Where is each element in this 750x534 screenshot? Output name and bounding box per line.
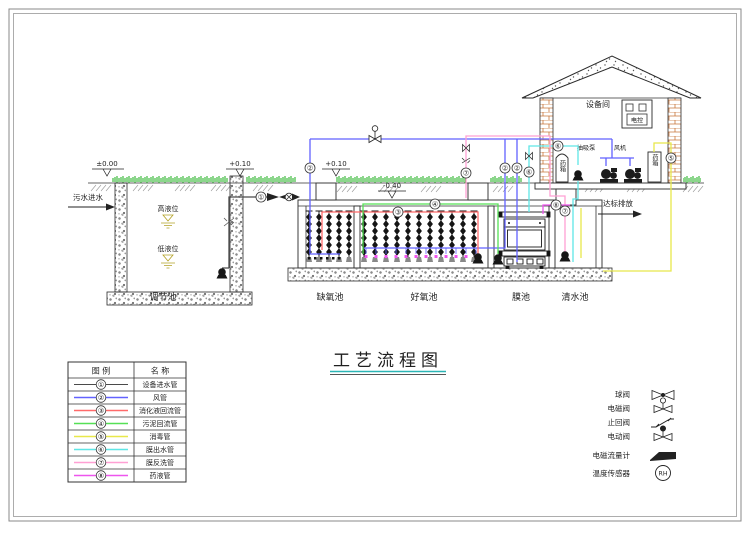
brick-column-left bbox=[540, 98, 553, 183]
legend-name: 风管 bbox=[153, 393, 167, 402]
legend-num: ⑥ bbox=[98, 446, 104, 454]
elev-tank-top: -0.40 bbox=[378, 182, 406, 198]
grass bbox=[112, 176, 228, 183]
legend-num: ③ bbox=[98, 407, 104, 415]
divider-wall bbox=[354, 206, 360, 268]
legend-num: ⑤ bbox=[98, 433, 104, 441]
aerobic-tank-label: 好氧池 bbox=[410, 291, 437, 303]
divider-wall bbox=[488, 206, 494, 268]
tank-wall bbox=[230, 176, 243, 292]
suction-pump-label: 抽吸泵 bbox=[577, 144, 596, 152]
pipe-num-2c: ② bbox=[514, 165, 520, 173]
drawing-sheet: 高液位 低液位 调节池 缺氧池 好氧池 膜池 bbox=[0, 0, 750, 530]
valve-label-sensor: 温度传感器 bbox=[593, 468, 631, 478]
suction-pump bbox=[573, 170, 584, 180]
elev-pier-top: +0.10 bbox=[322, 160, 350, 176]
flow-arrow bbox=[292, 194, 300, 201]
blower-label: 风机 bbox=[614, 144, 627, 152]
clean-tank-label: 清水池 bbox=[561, 291, 588, 303]
legend-row: ④ 污泥回流管 bbox=[74, 419, 178, 429]
valve-label-flowmeter: 电磁流量计 bbox=[593, 450, 631, 460]
title-text: 工艺流程图 bbox=[333, 351, 443, 371]
pipe-num-2b: ② bbox=[502, 165, 508, 173]
legend-name: 污泥回流管 bbox=[143, 419, 178, 428]
pipe-num-6: ⑥ bbox=[526, 169, 532, 177]
legend-num: ① bbox=[98, 381, 104, 389]
low-level-mark: 低液位 bbox=[158, 244, 179, 268]
chemical-tank-right-label: 药箱 bbox=[651, 153, 658, 167]
chemical-tank-left: 药箱 bbox=[556, 154, 568, 182]
legend-name: 药液管 bbox=[150, 471, 171, 480]
elev-ground: ±0.00 bbox=[92, 160, 124, 176]
valve-label-solenoid: 电磁阀 bbox=[608, 403, 631, 413]
legend-row: ⑤ 消毒管 bbox=[74, 432, 171, 442]
flowmeter-symbol bbox=[267, 193, 279, 201]
valve-legend: 球阀 电磁阀 止回阀 电动阀 电磁流量计 温度传感器 RH bbox=[593, 389, 677, 481]
blower-2 bbox=[624, 168, 642, 183]
legend-row: ⑦ 膜反洗管 bbox=[74, 458, 174, 468]
membrane-tank-label: 膜池 bbox=[512, 291, 530, 303]
legend-row: ① 设备进水管 bbox=[74, 380, 178, 390]
tank-wall bbox=[115, 183, 127, 292]
legend-row: ⑧ 药液管 bbox=[74, 471, 171, 481]
legend-name: 设备进水管 bbox=[143, 380, 178, 389]
lift-pump bbox=[217, 268, 228, 278]
legend-row: ③ 消化液回流管 bbox=[74, 406, 181, 416]
elev-wall-top: +0.10 bbox=[226, 160, 254, 176]
legend-num: ⑦ bbox=[98, 459, 104, 467]
pipe-num-1: ① bbox=[258, 194, 264, 202]
sensor-icon-text: RH bbox=[659, 471, 668, 478]
pier bbox=[468, 183, 488, 200]
sewage-inlet-label: 污水进水 bbox=[73, 192, 103, 202]
high-level-label: 高液位 bbox=[158, 204, 179, 213]
electric-valve-icon bbox=[654, 426, 672, 441]
legend-name: 膜出水管 bbox=[146, 445, 174, 454]
sewage-inlet: 污水进水 bbox=[68, 192, 115, 211]
pipe-num-6b: ⑥ bbox=[555, 143, 561, 151]
floor-slab bbox=[535, 183, 686, 189]
grass bbox=[683, 176, 701, 183]
pipe-num-8: ⑧ bbox=[553, 202, 559, 210]
legend-row: ⑥ 膜出水管 bbox=[74, 445, 174, 455]
elev-tank-top-label: -0.40 bbox=[383, 182, 401, 190]
legend-header-symbol: 图 例 bbox=[92, 366, 111, 376]
equipment-room-label: 设备间 bbox=[586, 99, 610, 109]
equipment-building: 设备间 电控 抽吸泵 风机 药箱 药箱 bbox=[522, 56, 701, 205]
low-level-label: 低液位 bbox=[158, 244, 179, 253]
drawing-title: 工艺流程图 bbox=[330, 351, 446, 375]
discharge-outlet: 达标排放 bbox=[598, 198, 642, 218]
legend-num: ② bbox=[98, 394, 104, 402]
membrane-module bbox=[499, 212, 550, 269]
pipe-num-7: ⑦ bbox=[463, 170, 469, 178]
chemical-tank-right: 药箱 bbox=[648, 152, 661, 182]
valve-label-check: 止回阀 bbox=[608, 417, 631, 427]
regulating-tank: 高液位 低液位 调节池 bbox=[107, 176, 252, 305]
control-panel: 电控 bbox=[622, 100, 652, 128]
inlet-arrow bbox=[106, 204, 115, 211]
brick-column-right bbox=[668, 98, 681, 183]
legend-row: ② 风管 bbox=[74, 393, 167, 403]
tank-slab bbox=[107, 292, 252, 305]
high-level-mark: 高液位 bbox=[158, 204, 179, 228]
pipe-num-3: ③ bbox=[395, 209, 401, 217]
grass bbox=[246, 176, 296, 183]
legend-name: 消化液回流管 bbox=[139, 406, 181, 415]
air-valve bbox=[369, 126, 381, 143]
pipe-num-7b: ⑦ bbox=[562, 208, 568, 216]
control-panel-label: 电控 bbox=[631, 117, 643, 125]
roof bbox=[522, 56, 701, 98]
flowmeter-icon bbox=[650, 452, 676, 461]
legend-num: ⑧ bbox=[98, 472, 104, 480]
solenoid-valve-icon bbox=[654, 398, 672, 413]
valve-label-electric: 电动阀 bbox=[608, 431, 631, 441]
discharge-arrow bbox=[633, 211, 642, 218]
pipe-num-4: ④ bbox=[432, 201, 438, 209]
chemical-tank-left-label: 药箱 bbox=[559, 159, 566, 173]
valve-label-ball: 球阀 bbox=[615, 389, 630, 399]
legend-table: 图 例 名 称 ① 设备进水管 ② 风管 ③ 消化液回流管 ④ 污泥回流管 bbox=[68, 362, 186, 482]
pipe-num-5: ⑤ bbox=[668, 155, 674, 163]
elev-wall-top-label: +0.10 bbox=[229, 160, 250, 168]
anoxic-tank-label: 缺氧池 bbox=[316, 291, 343, 303]
pipe-num-2: ② bbox=[307, 165, 313, 173]
process-flow-drawing: 高液位 低液位 调节池 缺氧池 好氧池 膜池 bbox=[0, 0, 750, 530]
regulating-tank-label: 调节池 bbox=[149, 291, 176, 303]
sensor-icon: RH bbox=[656, 466, 671, 481]
pier bbox=[316, 183, 336, 200]
legend-num: ④ bbox=[98, 420, 104, 428]
elev-ground-label: ±0.00 bbox=[96, 160, 117, 168]
blower-1 bbox=[600, 168, 618, 183]
discharge-label: 达标排放 bbox=[603, 198, 633, 208]
tank-bottom-slab bbox=[288, 268, 612, 281]
legend-name: 消毒管 bbox=[150, 432, 171, 441]
elev-pier-top-label: +0.10 bbox=[325, 160, 346, 168]
legend-name: 膜反洗管 bbox=[146, 458, 174, 467]
legend-header-name: 名 称 bbox=[151, 366, 170, 376]
inline-valve bbox=[285, 193, 293, 201]
